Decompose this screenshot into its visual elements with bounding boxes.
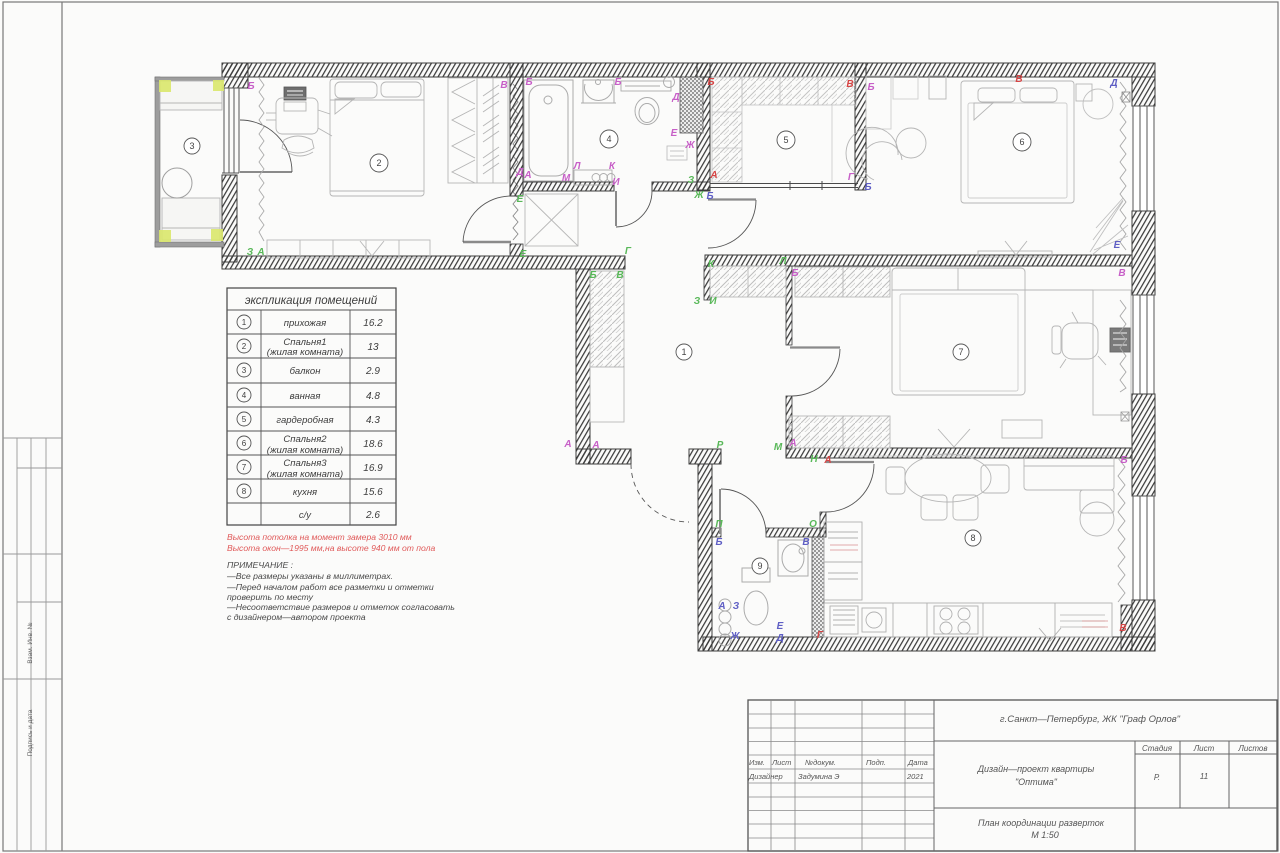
svg-text:В: В xyxy=(846,79,853,90)
svg-text:Б: Б xyxy=(589,270,596,281)
svg-text:7: 7 xyxy=(242,463,247,472)
svg-text:с дизайнером—автором проекта: с дизайнером—автором проекта xyxy=(227,612,366,622)
svg-text:Л: Л xyxy=(779,256,788,267)
svg-text:А: А xyxy=(591,440,599,451)
svg-text:Ж: Ж xyxy=(729,631,740,642)
svg-text:Н: Н xyxy=(810,454,818,465)
svg-text:6: 6 xyxy=(1019,137,1024,147)
svg-text:Д: Д xyxy=(671,92,679,103)
svg-text:кухня: кухня xyxy=(293,487,317,498)
svg-text:15.6: 15.6 xyxy=(363,487,383,498)
svg-text:З: З xyxy=(247,247,254,258)
svg-text:11: 11 xyxy=(1200,772,1208,781)
svg-text:16.9: 16.9 xyxy=(363,463,383,474)
svg-text:К: К xyxy=(609,161,616,172)
svg-text:Е: Е xyxy=(517,194,524,205)
svg-text:2.9: 2.9 xyxy=(365,366,380,377)
svg-text:Б: Б xyxy=(706,191,713,202)
svg-text:6: 6 xyxy=(242,439,247,448)
svg-text:Г: Г xyxy=(848,172,855,183)
svg-text:гардеробная: гардеробная xyxy=(276,415,333,426)
svg-text:Е: Е xyxy=(671,128,678,139)
svg-text:Листов: Листов xyxy=(1237,744,1267,753)
svg-text:В: В xyxy=(1118,268,1125,279)
svg-text:Е: Е xyxy=(520,249,527,260)
svg-text:А: А xyxy=(563,439,571,450)
svg-text:ПРИМЕЧАНИЕ :: ПРИМЕЧАНИЕ : xyxy=(227,560,294,570)
svg-text:И: И xyxy=(612,177,620,188)
svg-text:1: 1 xyxy=(242,318,247,327)
svg-text:О: О xyxy=(809,519,817,530)
svg-text:9: 9 xyxy=(757,561,762,571)
svg-text:И: И xyxy=(709,296,717,307)
svg-text:Ж: Ж xyxy=(684,140,695,151)
svg-text:Стадия: Стадия xyxy=(1142,744,1173,753)
svg-text:Б: Б xyxy=(247,81,254,92)
svg-text:8: 8 xyxy=(970,533,975,543)
svg-text:1: 1 xyxy=(681,347,686,357)
svg-text:Е: Е xyxy=(777,621,784,632)
svg-text:3: 3 xyxy=(242,366,247,375)
svg-text:Дизайнер: Дизайнер xyxy=(748,772,783,781)
svg-text:В: В xyxy=(1015,74,1022,85)
svg-text:А: А xyxy=(523,170,531,181)
svg-text:Б: Б xyxy=(525,77,532,88)
svg-text:А: А xyxy=(788,438,796,449)
svg-text:Высота потолка на момент замер: Высота потолка на момент замера 3010 мм xyxy=(227,532,412,542)
svg-text:№докум.: №докум. xyxy=(805,758,836,767)
svg-text:2: 2 xyxy=(376,158,381,168)
svg-text:М: М xyxy=(562,173,571,184)
svg-text:Изм.: Изм. xyxy=(749,758,765,767)
svg-text:З: З xyxy=(733,601,740,612)
svg-text:3: 3 xyxy=(189,141,194,151)
svg-text:ванная: ванная xyxy=(290,391,321,402)
svg-text:—Перед началом работ все разме: —Перед началом работ все разметки и отме… xyxy=(226,582,434,592)
svg-text:16.2: 16.2 xyxy=(363,318,383,329)
svg-text:2: 2 xyxy=(242,342,247,351)
svg-text:З: З xyxy=(688,175,695,186)
svg-text:Д: Д xyxy=(515,167,523,178)
svg-text:Подпись и дата: Подпись и дата xyxy=(27,709,34,756)
svg-text:"Оптима": "Оптима" xyxy=(1015,777,1058,787)
svg-text:В: В xyxy=(500,80,507,91)
svg-text:З: З xyxy=(694,296,701,307)
svg-text:балкон: балкон xyxy=(290,366,322,377)
svg-text:Б: Б xyxy=(614,77,621,88)
svg-text:5: 5 xyxy=(242,415,247,424)
svg-text:13: 13 xyxy=(367,342,379,353)
svg-text:Задумина Э: Задумина Э xyxy=(798,772,839,781)
svg-text:—Все размеры указаны в миллиме: —Все размеры указаны в миллиметрах. xyxy=(226,571,393,581)
svg-text:А: А xyxy=(256,247,264,258)
svg-text:План координации разверток: План координации разверток xyxy=(978,818,1105,828)
svg-text:—Несоответствие размеров и отм: —Несоответствие размеров и отметок согла… xyxy=(226,602,455,612)
svg-text:8: 8 xyxy=(242,487,247,496)
svg-text:Б: Б xyxy=(791,268,798,279)
svg-text:Дизайн—проект квартиры: Дизайн—проект квартиры xyxy=(977,764,1095,774)
svg-text:Подп.: Подп. xyxy=(866,758,886,767)
svg-text:П: П xyxy=(715,519,723,530)
svg-text:Б: Б xyxy=(715,537,722,548)
svg-text:Дата: Дата xyxy=(907,758,928,767)
svg-text:Б: Б xyxy=(864,182,871,193)
svg-text:Лист: Лист xyxy=(1193,744,1215,753)
svg-text:Б: Б xyxy=(1120,455,1127,466)
svg-text:4: 4 xyxy=(242,391,247,400)
svg-text:Б: Б xyxy=(867,82,874,93)
svg-text:Е: Е xyxy=(1114,240,1121,251)
svg-text:проверить по месту: проверить по месту xyxy=(227,592,314,602)
svg-text:(жилая комната): (жилая комната) xyxy=(267,347,343,358)
svg-text:2021: 2021 xyxy=(906,772,924,781)
svg-text:прихожая: прихожая xyxy=(284,318,326,329)
svg-text:7: 7 xyxy=(958,347,963,357)
svg-text:Г: Г xyxy=(817,630,824,641)
svg-text:А: А xyxy=(717,601,725,612)
svg-text:экспликация помещений: экспликация помещений xyxy=(245,295,378,307)
svg-text:Взам. Инв. №: Взам. Инв. № xyxy=(27,622,34,663)
svg-text:Л: Л xyxy=(573,161,582,172)
svg-text:Высота окон—1995 мм,на высоте: Высота окон—1995 мм,на высоте 940 мм от … xyxy=(227,543,435,553)
svg-text:(жилая комната): (жилая комната) xyxy=(267,469,343,480)
svg-text:18.6: 18.6 xyxy=(363,439,383,450)
svg-text:Г: Г xyxy=(625,246,632,257)
svg-text:2.6: 2.6 xyxy=(365,510,380,521)
svg-text:с/у: с/у xyxy=(299,510,312,521)
svg-text:Ж: Ж xyxy=(693,190,704,201)
svg-text:А: А xyxy=(823,455,831,466)
svg-text:В: В xyxy=(802,537,809,548)
svg-text:А: А xyxy=(709,170,717,181)
svg-text:г.Санкт—Петербург, ЖК "Граф Ор: г.Санкт—Петербург, ЖК "Граф Орлов" xyxy=(1000,714,1181,725)
svg-text:Р: Р xyxy=(717,440,724,451)
svg-text:М: М xyxy=(774,442,783,453)
svg-text:Лист: Лист xyxy=(771,758,791,767)
svg-text:Д: Д xyxy=(775,633,783,644)
svg-text:Спальня3: Спальня3 xyxy=(283,458,327,469)
svg-text:В: В xyxy=(1119,623,1126,634)
svg-text:К: К xyxy=(708,259,715,270)
svg-text:М 1:50: М 1:50 xyxy=(1031,830,1059,840)
svg-text:Б: Б xyxy=(707,77,714,88)
svg-text:Р.: Р. xyxy=(1154,773,1160,782)
svg-text:5: 5 xyxy=(783,135,788,145)
svg-text:Д: Д xyxy=(1109,78,1117,89)
svg-text:В: В xyxy=(616,270,623,281)
svg-text:4.8: 4.8 xyxy=(366,391,380,402)
svg-text:4: 4 xyxy=(606,134,611,144)
svg-text:4.3: 4.3 xyxy=(366,415,380,426)
svg-text:Спальня2: Спальня2 xyxy=(283,434,327,445)
svg-text:(жилая комната): (жилая комната) xyxy=(267,445,343,456)
